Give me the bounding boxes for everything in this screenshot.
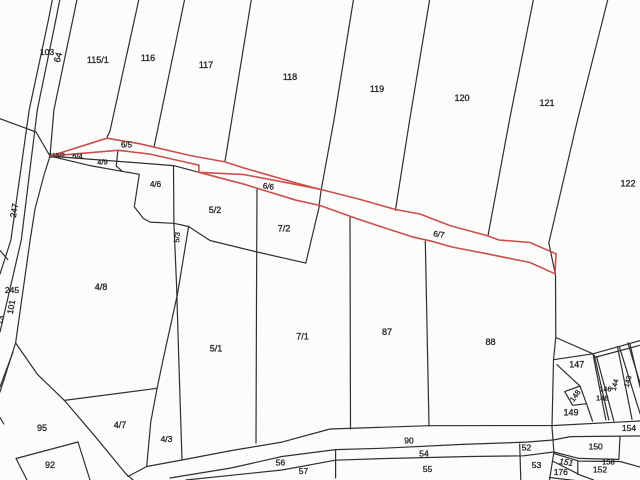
svg-text:95: 95 bbox=[37, 423, 47, 433]
svg-text:92: 92 bbox=[45, 460, 55, 470]
svg-text:54: 54 bbox=[419, 449, 429, 459]
svg-text:88: 88 bbox=[485, 337, 495, 347]
svg-text:4/3: 4/3 bbox=[161, 434, 173, 444]
svg-text:150: 150 bbox=[589, 442, 603, 452]
svg-text:115/1: 115/1 bbox=[87, 55, 109, 65]
svg-text:7/2: 7/2 bbox=[278, 224, 291, 234]
svg-text:4/8: 4/8 bbox=[95, 282, 108, 292]
svg-text:6/5: 6/5 bbox=[121, 141, 133, 150]
svg-text:6/4: 6/4 bbox=[72, 152, 82, 161]
svg-text:149: 149 bbox=[563, 408, 578, 418]
svg-text:5/1: 5/1 bbox=[210, 344, 223, 354]
svg-text:4/6: 4/6 bbox=[150, 180, 162, 189]
svg-text:4/9: 4/9 bbox=[97, 158, 107, 167]
svg-text:103: 103 bbox=[40, 47, 54, 57]
svg-text:56: 56 bbox=[276, 458, 286, 468]
svg-text:245: 245 bbox=[5, 285, 19, 295]
svg-text:87: 87 bbox=[382, 327, 392, 337]
svg-text:116: 116 bbox=[141, 53, 155, 63]
svg-text:5/2: 5/2 bbox=[209, 205, 222, 215]
svg-text:55: 55 bbox=[423, 464, 433, 474]
svg-text:6/7: 6/7 bbox=[433, 229, 446, 240]
svg-text:147: 147 bbox=[569, 360, 584, 370]
svg-text:53: 53 bbox=[532, 460, 542, 470]
svg-text:7/1: 7/1 bbox=[296, 332, 309, 342]
svg-text:90: 90 bbox=[404, 436, 414, 446]
svg-text:154: 154 bbox=[622, 423, 636, 433]
svg-text:118: 118 bbox=[283, 72, 297, 82]
svg-text:52: 52 bbox=[522, 443, 532, 453]
svg-text:6/6: 6/6 bbox=[262, 181, 275, 192]
svg-text:158: 158 bbox=[602, 458, 615, 467]
svg-text:119: 119 bbox=[370, 84, 384, 94]
svg-text:121: 121 bbox=[539, 98, 554, 108]
svg-text:117: 117 bbox=[199, 60, 213, 70]
svg-text:115/2: 115/2 bbox=[49, 153, 65, 160]
svg-text:57: 57 bbox=[299, 466, 309, 476]
svg-text:5/3: 5/3 bbox=[172, 232, 182, 243]
svg-text:122: 122 bbox=[620, 179, 635, 189]
svg-text:4/7: 4/7 bbox=[114, 420, 127, 430]
svg-text:120: 120 bbox=[454, 93, 469, 103]
svg-text:148: 148 bbox=[596, 394, 609, 403]
svg-text:176: 176 bbox=[554, 467, 568, 477]
